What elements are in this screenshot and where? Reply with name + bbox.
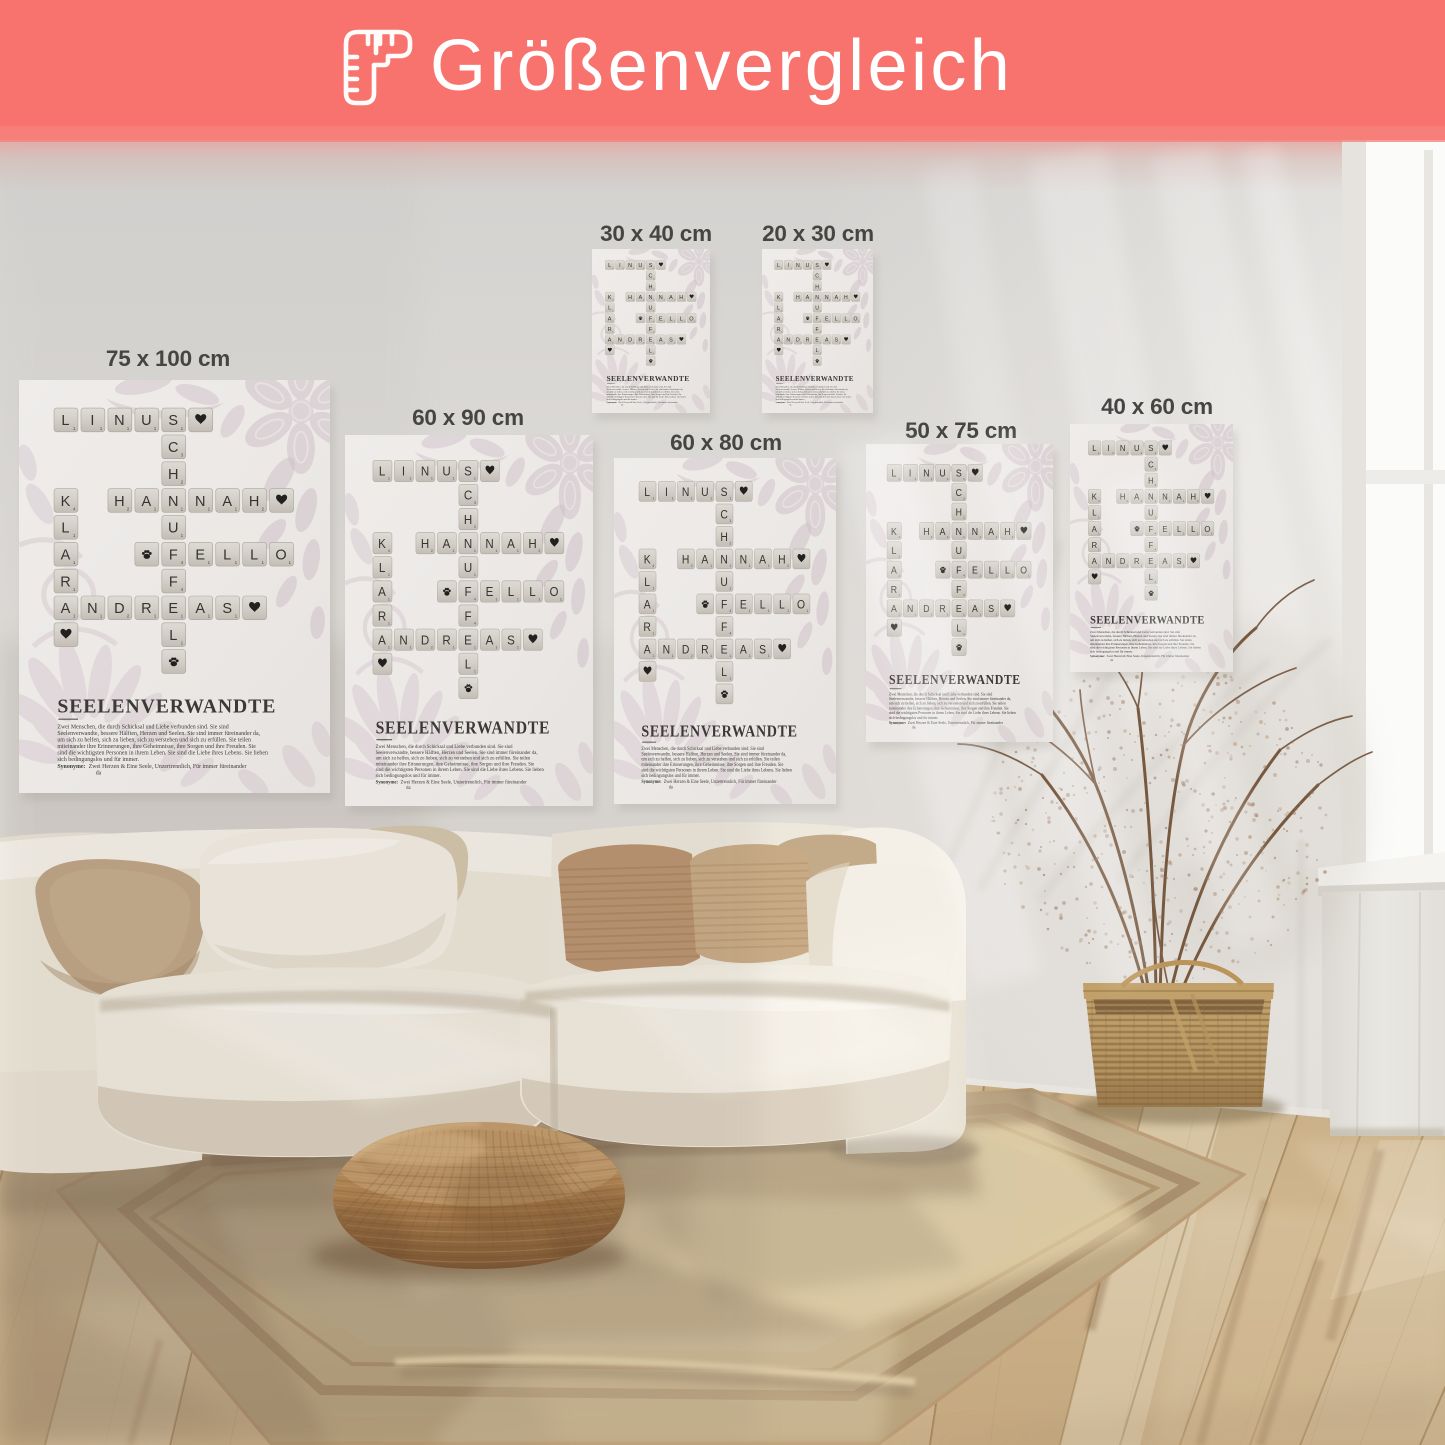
svg-text:60 x 90 cm: 60 x 90 cm (412, 405, 524, 430)
svg-text:Größenvergleich: Größenvergleich (430, 26, 1013, 106)
svg-text:20 x 30 cm: 20 x 30 cm (762, 221, 874, 246)
svg-text:75 x 100 cm: 75 x 100 cm (106, 346, 230, 371)
svg-text:40 x 60 cm: 40 x 60 cm (1101, 394, 1213, 419)
svg-text:30 x 40 cm: 30 x 40 cm (600, 221, 712, 246)
svg-text:60 x 80 cm: 60 x 80 cm (670, 430, 782, 455)
